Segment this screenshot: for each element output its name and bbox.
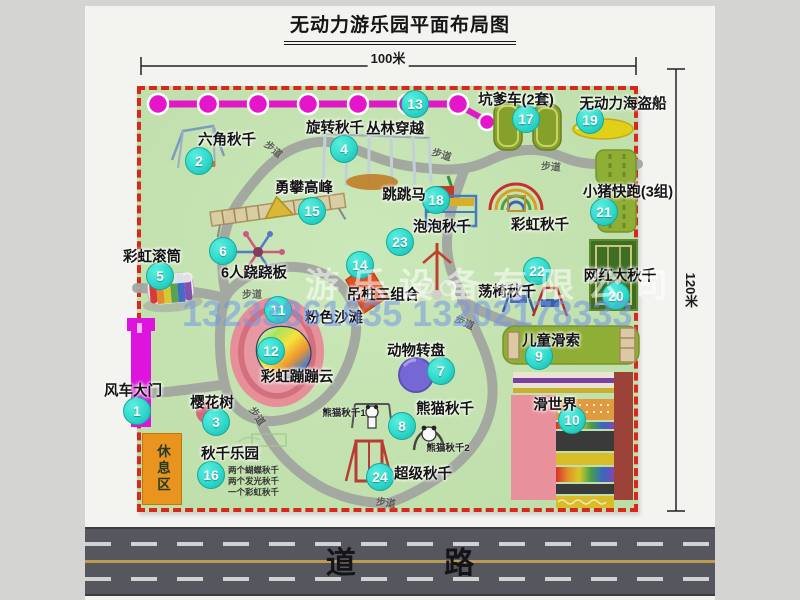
marker-panda-swing: 8: [388, 412, 416, 440]
marker-swing-paradise: 16: [197, 461, 225, 489]
label-hexagon-swing: 六角秋千: [198, 129, 256, 150]
marker-windmill-gate: 1: [123, 397, 151, 425]
label-swing-paradise: 秋千乐园: [201, 443, 259, 464]
marker-brave-climb-peak: 15: [298, 197, 326, 225]
label-panda-swing-1: 熊猫秋千1: [322, 405, 365, 419]
marker-rainbow-bounce-cloud: 12: [257, 337, 285, 365]
label-slide-world: 滑世界: [533, 394, 577, 415]
label-super-swing: 超级秋千: [394, 463, 452, 484]
label-jungle-crossing: 丛林穿越: [366, 118, 424, 139]
marker-super-swing: 24: [366, 463, 394, 491]
rest-area-label: 休息区: [152, 444, 172, 494]
screenshot-root: 无动力游乐园平面布局图: [0, 0, 800, 600]
marker-bubble-swing: 23: [386, 228, 414, 256]
label-panda-swing-2: 熊猫秋千2: [426, 440, 469, 454]
label-brave-climb-peak: 勇攀高峰: [275, 177, 333, 198]
swing-paradise-note: 一个彩虹秋千: [228, 486, 279, 498]
label-windmill-gate: 风车大门: [104, 380, 162, 401]
marker-animal-turntable: 7: [427, 357, 455, 385]
label-rainbow-bounce-cloud: 彩虹蹦蹦云: [261, 366, 334, 387]
label-rotating-swing: 旋转秋千: [306, 117, 364, 138]
label-pirate-ship: 无动力海盗船: [580, 93, 667, 114]
label-pit-car: 坑爹车(2套): [478, 89, 554, 110]
road-label: 道 路: [286, 538, 514, 582]
label-piggy-run: 小猪快跑(3组): [583, 181, 673, 202]
label-panda-swing: 熊猫秋千: [416, 398, 474, 419]
label-cherry-tree: 樱花树: [190, 392, 234, 413]
walkway-label: 步道: [375, 493, 397, 511]
label-bubble-swing: 泡泡秋千: [413, 216, 471, 237]
label-jumping-horse: 跳跳马: [382, 184, 426, 205]
marker-jungle-crossing: 13: [401, 90, 429, 118]
label-rainbow-roller: 彩虹滚筒: [123, 246, 181, 267]
marker-hexagon-swing: 2: [185, 147, 213, 175]
label-rainbow-swing: 彩虹秋千: [511, 214, 569, 235]
marker-rotating-swing: 4: [330, 135, 358, 163]
label-six-seesaw: 6人跷跷板: [221, 262, 287, 283]
dimension-height-label: 120米: [681, 270, 700, 311]
walkway-label: 步道: [541, 157, 562, 173]
road: 道 路: [85, 527, 715, 596]
rest-area: 休息区: [142, 433, 182, 505]
page-title: 无动力游乐园平面布局图: [284, 10, 516, 45]
label-animal-turntable: 动物转盘: [387, 340, 445, 361]
marker-piggy-run: 21: [590, 198, 618, 226]
watermark-phone: 13233861635 13202178333: [182, 293, 632, 335]
dimension-width-label: 100米: [368, 48, 409, 67]
